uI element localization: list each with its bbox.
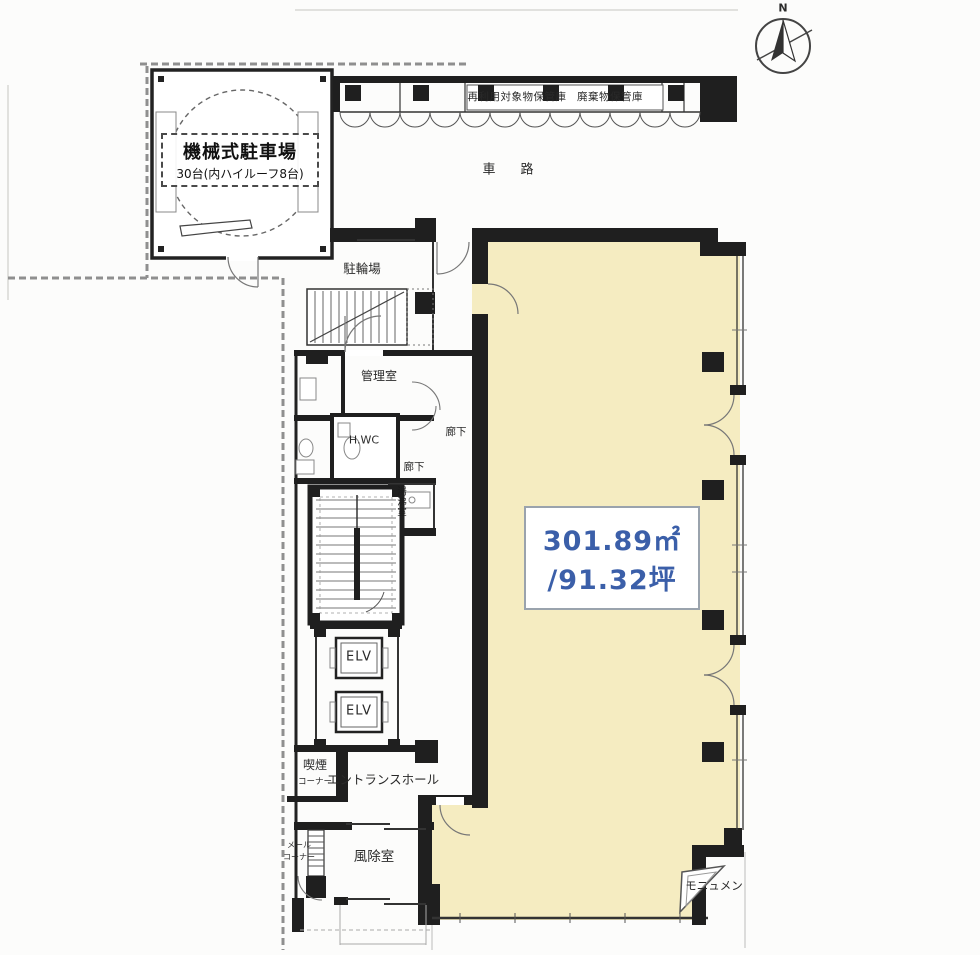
mail-corner-label-2: コーナー [283, 852, 315, 861]
storage-label-recyclables: 再利用対象物保管庫 [468, 91, 567, 103]
tenant-door-gap-southwest [436, 797, 464, 805]
mechanical-parking-capacity: 30台(内ハイルーフ8台) [176, 165, 303, 182]
elevator-1-label: ELV [346, 651, 372, 666]
tenant-area-sqm: 301.89㎡ [543, 519, 681, 558]
parking-door-gap [226, 252, 258, 261]
tenant-door-gap-west [472, 284, 488, 314]
toilet-label: H.WC [349, 435, 379, 448]
hot-water-room-label: 湯沸室 [393, 486, 407, 518]
mechanical-parking-label-box: 機械式駐車場 30台(内ハイルーフ8台) [161, 133, 319, 187]
floorplan-drawing [0, 0, 980, 955]
parking-door-swing [228, 257, 258, 287]
compass-icon [756, 19, 812, 73]
stairwell [310, 487, 402, 629]
corridor-lower-label: 廊下 [404, 461, 425, 473]
bicycle-parking-label: 駐輪場 [343, 262, 381, 276]
windbreak-room-label: 風除室 [354, 850, 395, 866]
entrance-hall-label: エントランスホール [327, 773, 439, 787]
compass-north-label: N [778, 3, 787, 16]
storage-label-waste: 廃棄物保管庫 [577, 91, 643, 103]
tenant-area-tsubo: /91.32坪 [547, 558, 676, 597]
corridor-upper-label: 廊下 [446, 426, 467, 438]
awning-scallops [340, 112, 700, 127]
stair-rail [354, 528, 360, 600]
elevators [314, 627, 400, 749]
hall-column [415, 740, 438, 763]
driveway-label: 車 路 [482, 164, 539, 179]
smoking-corner-label-2: コーナー [298, 778, 332, 788]
floor-plan-canvas: N 機械式駐車場 30台(内ハイルーフ8台) 再利用対象物保管庫 廃棄物保管庫 … [0, 0, 980, 955]
smoking-corner-label-1: 喫煙 [303, 759, 327, 773]
monument-label: モニュメン [685, 879, 743, 892]
elevator-2-label: ELV [346, 705, 372, 720]
management-room-label: 管理室 [361, 370, 397, 384]
mechanical-parking-name: 機械式駐車場 [183, 138, 297, 164]
tenant-area-label-box: 301.89㎡ /91.32坪 [524, 506, 700, 610]
mail-corner-label-1: メール [287, 840, 311, 849]
